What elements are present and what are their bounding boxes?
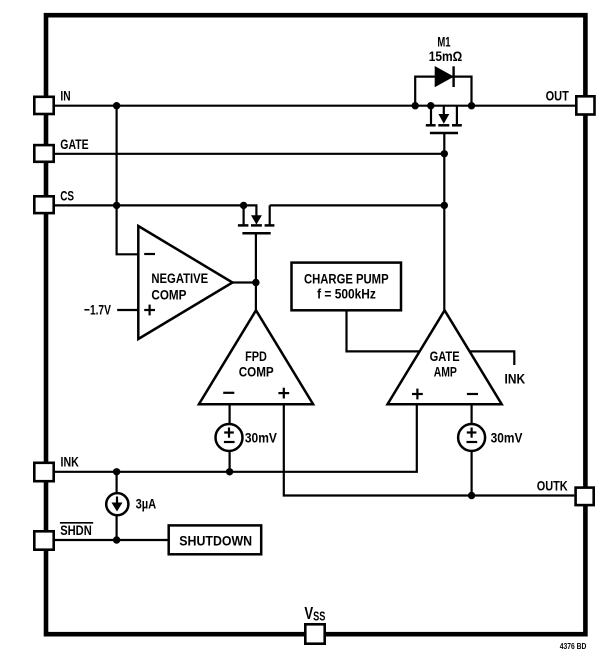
svg-text:NEGATIVE: NEGATIVE bbox=[151, 271, 208, 287]
svg-text:CHARGE PUMP: CHARGE PUMP bbox=[304, 271, 389, 287]
svg-text:AMP: AMP bbox=[434, 364, 457, 380]
svg-text:IN: IN bbox=[60, 88, 70, 104]
svg-text:INK: INK bbox=[505, 372, 526, 388]
svg-text:FPD: FPD bbox=[245, 349, 267, 365]
svg-text:OUT: OUT bbox=[546, 88, 569, 104]
svg-text:GATE: GATE bbox=[430, 349, 460, 365]
svg-text:SHDN: SHDN bbox=[60, 523, 92, 539]
svg-text:SS: SS bbox=[313, 609, 325, 624]
svg-text:COMP: COMP bbox=[239, 364, 274, 380]
svg-text:INK: INK bbox=[61, 454, 80, 470]
svg-text:30mV: 30mV bbox=[245, 430, 277, 446]
svg-text:−1.7V: −1.7V bbox=[84, 303, 111, 319]
svg-text:M1: M1 bbox=[437, 34, 450, 50]
svg-text:CS: CS bbox=[60, 189, 74, 205]
svg-text:4376 BD: 4376 BD bbox=[560, 642, 587, 651]
svg-text:f = 500kHz: f = 500kHz bbox=[317, 287, 376, 303]
svg-text:COMP: COMP bbox=[151, 287, 186, 303]
svg-text:15mΩ: 15mΩ bbox=[429, 49, 463, 65]
svg-text:SHUTDOWN: SHUTDOWN bbox=[179, 533, 252, 549]
svg-text:OUTK: OUTK bbox=[537, 479, 569, 495]
svg-text:V: V bbox=[304, 603, 313, 623]
svg-text:30mV: 30mV bbox=[491, 430, 523, 446]
svg-text:3µA: 3µA bbox=[136, 497, 157, 513]
svg-text:GATE: GATE bbox=[60, 137, 88, 153]
